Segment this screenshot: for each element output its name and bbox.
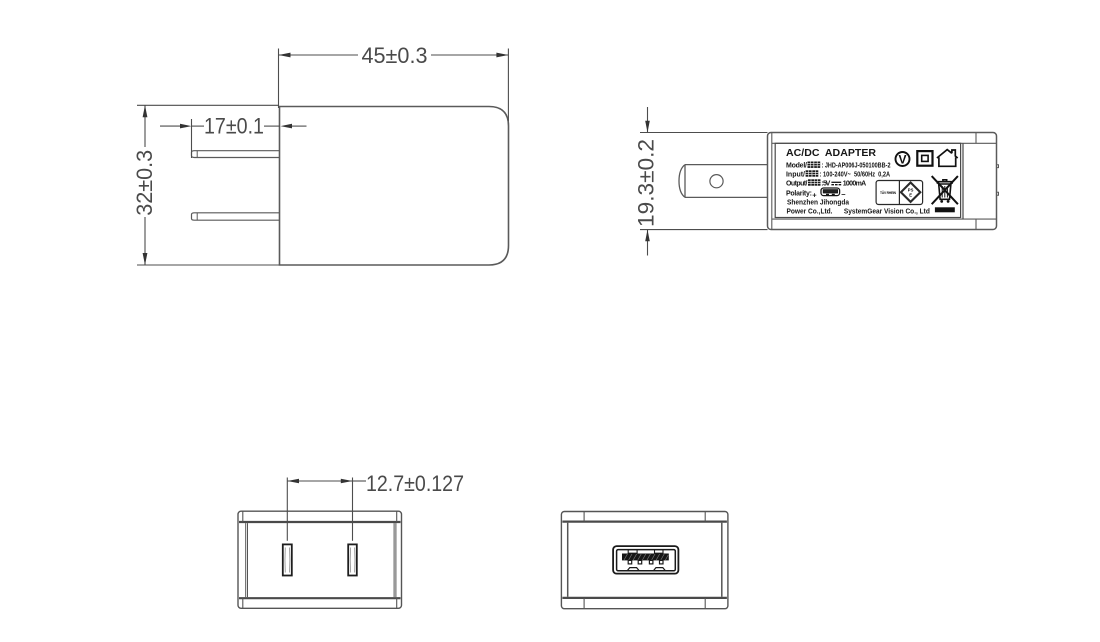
svg-text:TÜV RHEIN: TÜV RHEIN (880, 191, 897, 195)
svg-text:32±0.3: 32±0.3 (132, 150, 157, 216)
svg-text:Output/: Output/ (786, 180, 808, 187)
svg-text:Power Co.,Ltd.: Power Co.,Ltd. (787, 208, 833, 215)
svg-text:: 5V: : 5V (821, 180, 830, 187)
svg-text:−: − (841, 190, 846, 199)
svg-text:1000mA: 1000mA (843, 180, 867, 187)
svg-text:12.7±0.127: 12.7±0.127 (366, 471, 464, 496)
svg-text:Model/: Model/ (786, 163, 807, 170)
svg-text:+: + (812, 191, 817, 200)
svg-text:Shenzhen Jihongda: Shenzhen Jihongda (787, 200, 849, 207)
svg-text:17±0.1: 17±0.1 (204, 113, 264, 138)
svg-text:SystemGear Vision Co., Ltd: SystemGear Vision Co., Ltd (844, 208, 930, 215)
svg-text:: 100-240V~ 50/60Hz 0,2A: : 100-240V~ 50/60Hz 0,2A (820, 171, 891, 178)
svg-text:AC/DC ADAPTER: AC/DC ADAPTER (786, 147, 876, 159)
svg-text:: JHD-AP006J-050100BB-2: : JHD-AP006J-050100BB-2 (822, 163, 891, 170)
svg-text:Polarity:: Polarity: (786, 190, 812, 197)
svg-text:E: E (909, 193, 912, 198)
svg-text:V: V (898, 152, 906, 166)
svg-text:19.3±0.2: 19.3±0.2 (634, 139, 659, 227)
svg-text:45±0.3: 45±0.3 (362, 43, 428, 68)
svg-text:Input/: Input/ (786, 171, 805, 178)
